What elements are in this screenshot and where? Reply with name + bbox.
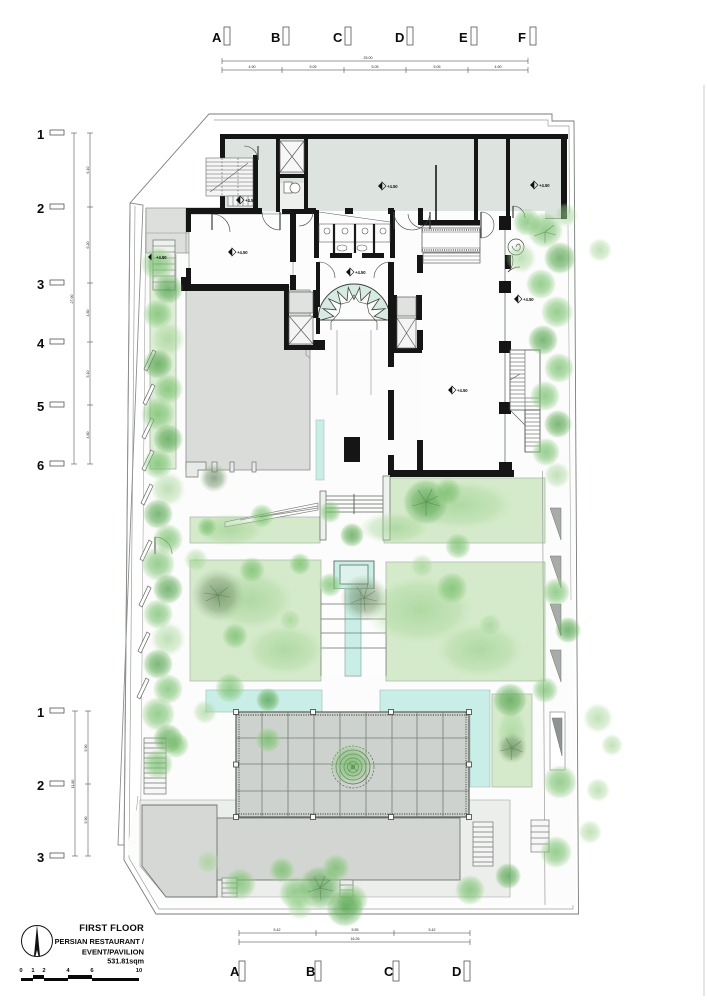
svg-text:11.80: 11.80 [71, 780, 75, 789]
svg-text:5.42: 5.42 [274, 928, 281, 932]
svg-text:F: F [518, 30, 526, 45]
svg-text:A: A [230, 964, 240, 979]
svg-text:6.10: 6.10 [86, 167, 90, 174]
svg-text:+4.50: +4.50 [237, 250, 248, 255]
svg-text:5.55: 5.55 [352, 928, 359, 932]
svg-text:10: 10 [136, 968, 142, 974]
svg-text:E: E [459, 30, 468, 45]
svg-text:B: B [271, 30, 280, 45]
svg-text:4: 4 [37, 336, 45, 351]
svg-text:4.90: 4.90 [249, 65, 256, 69]
svg-text:5.05: 5.05 [310, 65, 317, 69]
svg-text:4.80: 4.80 [86, 432, 90, 439]
svg-text:4.90: 4.90 [495, 65, 502, 69]
svg-text:+4.50: +4.50 [156, 255, 167, 260]
svg-text:6.20: 6.20 [86, 242, 90, 249]
svg-text:5.90: 5.90 [84, 817, 88, 824]
svg-text:A: A [212, 30, 222, 45]
svg-text:3: 3 [37, 850, 44, 865]
svg-text:D: D [452, 964, 461, 979]
svg-text:2: 2 [37, 778, 44, 793]
svg-text:PERSIAN RESTAURANT /: PERSIAN RESTAURANT / [55, 937, 144, 946]
svg-text:5.10: 5.10 [86, 371, 90, 378]
svg-text:C: C [384, 964, 394, 979]
svg-text:5.05: 5.05 [434, 65, 441, 69]
svg-text:3: 3 [37, 277, 44, 292]
svg-text:D: D [395, 30, 404, 45]
svg-text:5.42: 5.42 [429, 928, 436, 932]
svg-text:+4.50: +4.50 [355, 270, 366, 275]
svg-text:5: 5 [37, 399, 44, 414]
svg-text:EVENT/PAVILION: EVENT/PAVILION [82, 948, 144, 957]
svg-text:+4.50: +4.50 [523, 297, 534, 302]
svg-text:0: 0 [19, 968, 22, 974]
svg-text:+4.50: +4.50 [387, 184, 398, 189]
svg-text:27.00: 27.00 [70, 295, 74, 304]
svg-text:25.00: 25.00 [364, 56, 373, 60]
svg-text:B: B [306, 964, 315, 979]
svg-text:FIRST FLOOR: FIRST FLOOR [79, 922, 144, 933]
svg-text:+4.50: +4.50 [245, 198, 256, 203]
svg-text:6: 6 [37, 458, 44, 473]
svg-text:+4.50: +4.50 [539, 183, 550, 188]
svg-text:1: 1 [37, 127, 44, 142]
svg-text:+4.50: +4.50 [457, 388, 468, 393]
svg-text:5.05: 5.05 [372, 65, 379, 69]
svg-text:4.80: 4.80 [86, 310, 90, 317]
svg-text:5.90: 5.90 [84, 745, 88, 752]
svg-text:2: 2 [37, 201, 44, 216]
svg-text:531.81sqm: 531.81sqm [107, 957, 144, 966]
svg-text:1: 1 [37, 705, 44, 720]
svg-text:16.26: 16.26 [351, 937, 360, 941]
svg-text:C: C [333, 30, 343, 45]
svg-text:2: 2 [42, 968, 45, 974]
